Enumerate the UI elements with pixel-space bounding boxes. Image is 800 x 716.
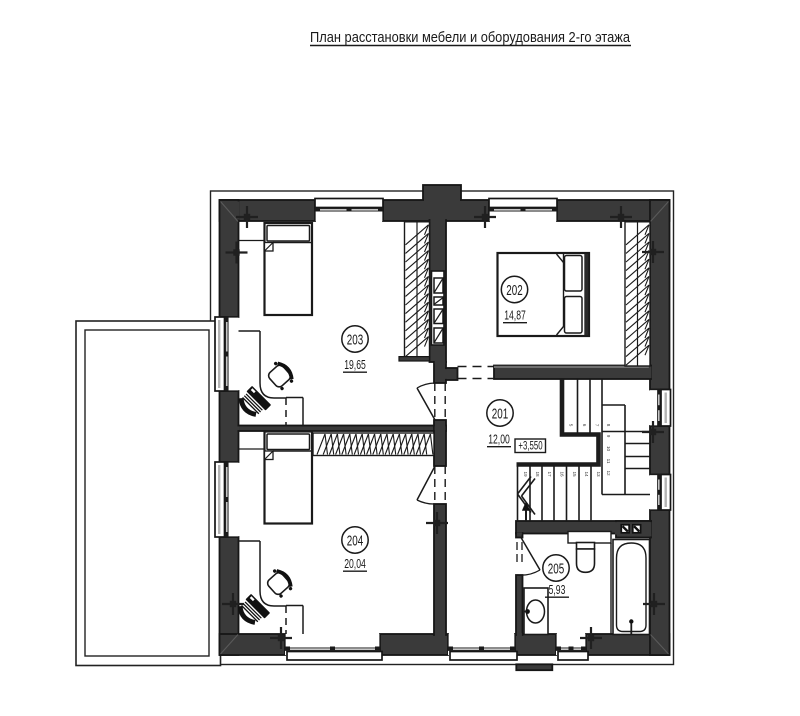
svg-text:20,04: 20,04 — [344, 557, 366, 571]
svg-text:9: 9 — [606, 435, 611, 438]
svg-text:5,93: 5,93 — [549, 583, 566, 597]
svg-text:14,87: 14,87 — [504, 309, 526, 323]
svg-text:205: 205 — [548, 560, 564, 577]
svg-text:16: 16 — [560, 471, 565, 477]
svg-text:17: 17 — [547, 471, 552, 477]
svg-text:+3,550: +3,550 — [518, 440, 543, 453]
svg-text:19: 19 — [523, 471, 528, 477]
svg-text:8: 8 — [606, 424, 611, 427]
svg-text:5: 5 — [569, 424, 574, 427]
svg-text:15: 15 — [572, 471, 577, 477]
svg-text:12: 12 — [606, 470, 611, 476]
svg-text:13: 13 — [596, 471, 601, 477]
svg-text:18: 18 — [535, 471, 540, 477]
svg-text:19,65: 19,65 — [344, 358, 366, 372]
svg-text:201: 201 — [492, 405, 508, 422]
svg-text:План расстановки мебели и обор: План расстановки мебели и оборудования 2… — [310, 28, 630, 45]
svg-text:10: 10 — [606, 446, 611, 452]
svg-text:204: 204 — [347, 532, 363, 549]
svg-text:14: 14 — [584, 471, 589, 477]
svg-text:202: 202 — [506, 282, 522, 299]
svg-text:203: 203 — [347, 331, 363, 348]
svg-text:6: 6 — [582, 424, 587, 427]
svg-text:7: 7 — [595, 424, 600, 427]
svg-text:11: 11 — [606, 459, 611, 464]
svg-text:12,00: 12,00 — [488, 433, 510, 447]
